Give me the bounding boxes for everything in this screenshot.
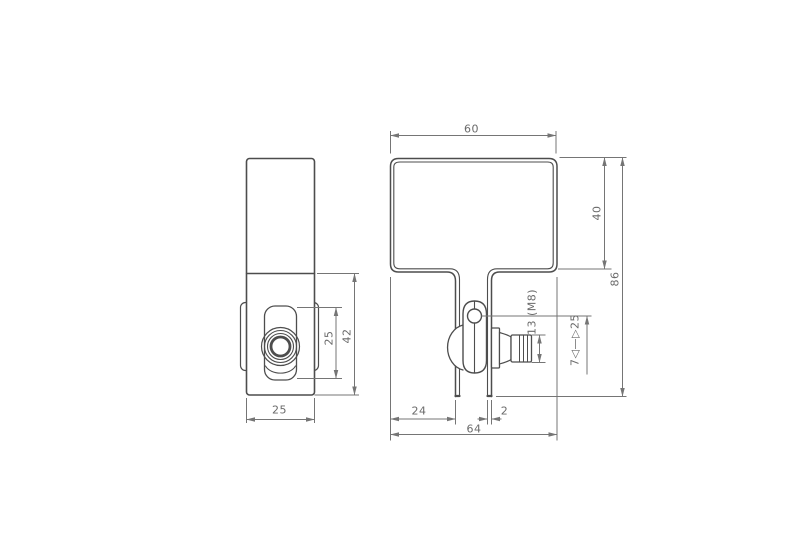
dim-label-lower-height: 42 [341, 329, 352, 344]
dim-label-total-height: 86 [610, 272, 621, 287]
front-cam-bulge [448, 325, 463, 370]
dim-label-top-width: 60 [464, 123, 479, 134]
front-view-outline [391, 159, 558, 397]
dim-label-side-width: 25 [272, 405, 287, 416]
front-screw-neck [500, 333, 512, 365]
dim-label-leg-offset: 24 [412, 406, 427, 417]
dim-label-clamp-range: 7◁—▷25 [570, 314, 581, 366]
front-washer [492, 328, 500, 368]
front-screw-knob [511, 335, 532, 362]
dim-label-leg-thickness: 2 [501, 406, 509, 417]
technical-drawing-canvas: 60 40 86 13 (M8) 7◁—▷25 24 2 64 25 42 25 [0, 0, 800, 558]
dim-label-total-width: 64 [467, 423, 482, 434]
drawing-geometry [0, 0, 800, 558]
side-view-outline [241, 159, 319, 396]
dim-label-slot-height: 25 [323, 331, 334, 346]
dim-label-bolt-spec: 13 (M8) [527, 289, 538, 335]
dim-label-box-height: 40 [591, 206, 602, 221]
